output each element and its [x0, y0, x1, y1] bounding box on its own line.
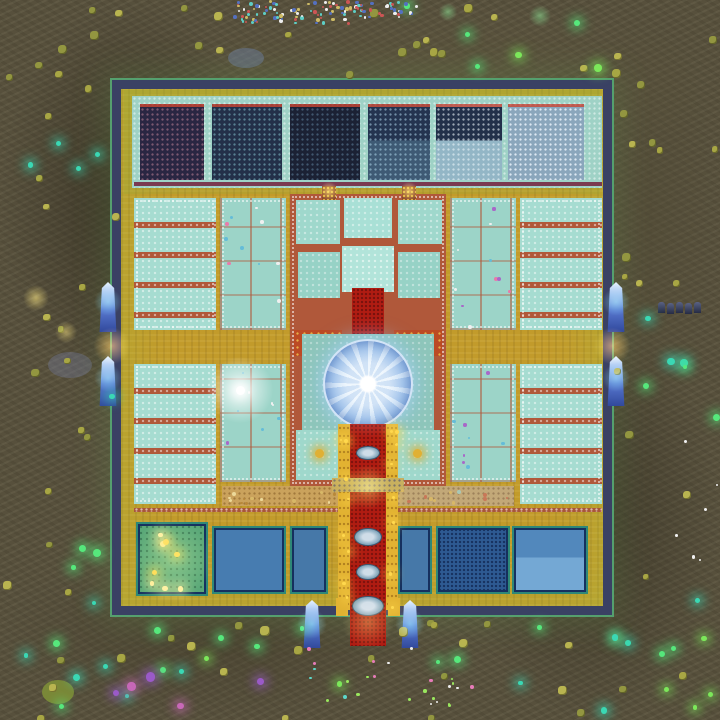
item-stockpile [297, 8, 299, 10]
furnishing [224, 237, 228, 241]
bush [282, 715, 289, 720]
item-stockpile [273, 8, 277, 12]
item-stockpile [307, 3, 310, 6]
glowing-plant [53, 640, 60, 647]
dormitory-block[interactable] [220, 364, 286, 482]
furnishing [508, 290, 511, 293]
bush [37, 715, 45, 720]
palace-hall[interactable] [342, 246, 394, 292]
bush [712, 146, 719, 153]
glowing-plant [160, 667, 166, 673]
dropped-items [456, 687, 459, 690]
glowing-plant [93, 549, 101, 557]
bush [117, 654, 126, 663]
dropped-items [436, 701, 438, 703]
spirit-field[interactable] [290, 104, 360, 180]
pool[interactable] [214, 528, 284, 592]
bush [683, 491, 691, 499]
glowing-plant [436, 660, 440, 664]
bush [637, 81, 645, 89]
item-stockpile [341, 12, 344, 15]
sparkle [692, 555, 696, 559]
spirit-field[interactable] [436, 104, 502, 180]
bush [679, 672, 687, 680]
item-stockpile [292, 8, 296, 12]
glowing-plant [71, 565, 75, 569]
bush [31, 369, 39, 377]
item-stockpile [265, 6, 267, 8]
dropped-items [423, 689, 427, 693]
bush [235, 622, 242, 629]
palace-tower[interactable] [322, 186, 336, 200]
bush [90, 31, 99, 40]
furnishing [227, 262, 230, 265]
item-stockpile [331, 18, 335, 22]
bush [577, 709, 585, 717]
furnishing [463, 454, 466, 457]
storehouse-rows[interactable] [134, 364, 216, 504]
glowing-plant [92, 601, 96, 605]
item-stockpile [269, 6, 272, 9]
item-stockpile [343, 13, 346, 16]
purple-flora [127, 682, 135, 690]
bush [181, 5, 188, 12]
item-stockpile [237, 5, 239, 7]
palace-tower[interactable] [402, 186, 416, 200]
item-stockpile [263, 12, 266, 15]
bush [438, 50, 446, 58]
item-stockpile [249, 2, 253, 6]
purple-flora [113, 690, 119, 696]
glowing-plant [601, 707, 607, 713]
item-stockpile [343, 18, 347, 22]
item-stockpile [245, 16, 248, 19]
dropped-items [432, 697, 435, 700]
glowing-plant [73, 674, 81, 682]
glowing-plant [645, 316, 650, 321]
bush [614, 53, 622, 61]
bush [64, 358, 71, 365]
dropped-items [430, 703, 432, 705]
item-stockpile [340, 6, 343, 9]
item-stockpile [346, 0, 350, 4]
bush [625, 431, 633, 439]
dormitory-block[interactable] [450, 364, 516, 482]
bush [58, 45, 67, 54]
item-stockpile [398, 16, 400, 18]
bush [622, 253, 631, 262]
moss-blob [42, 680, 74, 704]
item-stockpile [397, 13, 400, 16]
bush [649, 139, 657, 147]
glowing-plant [254, 644, 259, 649]
dropped-items [307, 647, 311, 651]
spirit-field[interactable] [508, 104, 584, 180]
item-stockpile [359, 15, 361, 17]
glowing-plant [643, 383, 649, 389]
torch-light [344, 439, 348, 443]
item-stockpile [368, 16, 371, 19]
sparkle [716, 484, 718, 486]
light-bloom [22, 284, 50, 312]
bush [464, 4, 473, 13]
item-stockpile [324, 1, 327, 4]
bush [709, 36, 717, 44]
item-stockpile [313, 1, 317, 5]
item-stockpile [313, 10, 317, 14]
glowing-plant [204, 656, 209, 661]
item-stockpile [315, 22, 318, 25]
spirit-field[interactable] [368, 104, 430, 180]
bush [413, 41, 421, 49]
carpet-medallion [354, 528, 382, 546]
sparkle [684, 440, 687, 443]
dropped-items [470, 685, 474, 689]
fish-pond[interactable] [138, 524, 206, 594]
glowing-plant [518, 681, 523, 686]
dropped-items [309, 677, 311, 679]
glowing-plant [337, 681, 342, 686]
purple-flora [146, 672, 156, 682]
bush [398, 48, 407, 57]
item-stockpile [370, 2, 374, 6]
furnishing [225, 222, 229, 226]
glowing-plant [125, 694, 129, 698]
furnishing [463, 423, 466, 426]
dropped-items [343, 695, 347, 699]
pool[interactable] [514, 528, 586, 592]
bush [423, 37, 431, 45]
bush [346, 71, 354, 79]
altar[interactable] [315, 449, 324, 458]
glowing-plant [56, 141, 61, 146]
glowing-plant [537, 625, 542, 630]
bush [622, 274, 628, 280]
palace-room[interactable] [398, 200, 442, 244]
glowing-plant [659, 651, 665, 657]
glowing-plant [109, 394, 115, 400]
glowing-plant [218, 635, 224, 641]
item-stockpile [349, 6, 352, 9]
bush [3, 581, 11, 589]
pool[interactable] [400, 528, 430, 592]
furnishing [230, 216, 233, 219]
item-stockpile [320, 13, 323, 16]
item-stockpile [399, 10, 403, 14]
glowing-plant [574, 20, 580, 26]
bush [620, 110, 628, 118]
bush [45, 488, 52, 495]
torch-light [389, 572, 393, 576]
grave-marker[interactable] [694, 302, 701, 313]
item-stockpile [241, 15, 244, 18]
torch-light [342, 582, 346, 586]
dropped-items [429, 679, 433, 683]
gold-colonnade [386, 424, 398, 610]
light-bloom [438, 2, 458, 22]
gate-frame [336, 598, 348, 616]
item-stockpile [317, 14, 319, 16]
glowing-plant [708, 692, 713, 697]
item-stockpile [310, 10, 312, 12]
glowing-plant [612, 634, 619, 641]
purple-flora [257, 678, 264, 685]
dropped-items [387, 662, 389, 664]
bush [6, 74, 13, 81]
dropped-items [326, 699, 329, 702]
item-stockpile [386, 4, 389, 7]
lamp[interactable] [236, 386, 245, 395]
glowing-plant [695, 598, 700, 603]
item-stockpile [294, 22, 297, 25]
bush [57, 657, 65, 665]
furnishing [452, 420, 455, 423]
stored-goods [433, 499, 436, 502]
furnishing [454, 288, 457, 291]
glowing-fish [174, 552, 180, 558]
item-stockpile [397, 1, 400, 4]
stored-goods [260, 498, 263, 501]
bush [459, 639, 469, 649]
carpet-medallion [352, 596, 384, 616]
item-stockpile [325, 8, 328, 11]
item-stockpile [329, 5, 332, 8]
item-stockpile [322, 6, 324, 8]
glowing-plant [701, 636, 707, 642]
bush [45, 113, 52, 120]
ceremonial-gate[interactable] [332, 478, 404, 492]
glowing-plant [683, 365, 687, 369]
bush [214, 12, 223, 21]
furnishing [468, 325, 472, 329]
glowing-plant [594, 64, 602, 72]
item-stockpile [294, 18, 297, 21]
stored-goods [245, 502, 247, 504]
dropped-items [451, 678, 454, 681]
bush [612, 69, 621, 78]
sparkle [675, 534, 678, 537]
puddle [228, 48, 264, 68]
palace-room[interactable] [296, 200, 340, 244]
grave-marker[interactable] [667, 303, 674, 314]
dropped-items [448, 685, 451, 688]
item-stockpile [316, 18, 320, 22]
glowing-plant [103, 664, 108, 669]
item-stockpile [415, 5, 418, 8]
bush [430, 48, 438, 56]
glowing-fish [178, 586, 184, 592]
bush [614, 368, 621, 375]
item-stockpile [353, 10, 356, 13]
bush [399, 627, 408, 636]
bush [629, 141, 636, 148]
glowing-plant [625, 640, 631, 646]
bush [657, 147, 663, 153]
stored-goods [328, 501, 330, 503]
stored-goods [228, 497, 230, 499]
item-stockpile [329, 12, 333, 16]
bush [36, 175, 43, 182]
item-stockpile [335, 4, 337, 6]
carpet-upper [352, 288, 384, 340]
spirit-field[interactable] [212, 104, 282, 180]
bush [484, 621, 491, 628]
bush [78, 427, 85, 434]
bush [491, 14, 499, 22]
bush [636, 280, 643, 287]
grave-marker[interactable] [676, 302, 683, 313]
dropped-items [410, 647, 413, 650]
bush [187, 642, 196, 651]
glowing-plant [76, 166, 81, 171]
furnishing [461, 305, 463, 307]
bush [441, 673, 449, 681]
bush [565, 642, 573, 650]
item-stockpile [238, 10, 240, 12]
item-stockpile [253, 8, 255, 10]
glowing-plant [515, 52, 521, 58]
item-stockpile [265, 9, 268, 12]
palace-hall[interactable] [398, 252, 440, 298]
grave-marker[interactable] [685, 303, 692, 314]
item-stockpile [275, 3, 278, 6]
pool[interactable] [292, 528, 326, 592]
palace-hall[interactable] [298, 252, 340, 298]
bush [46, 542, 53, 549]
stored-goods [229, 499, 232, 502]
bush [85, 85, 93, 93]
furnishing [255, 207, 257, 209]
bush [216, 47, 224, 55]
bush [65, 589, 72, 596]
bush [428, 715, 435, 720]
bush [260, 626, 270, 636]
bush [431, 622, 439, 630]
furnishing [492, 207, 495, 210]
glowing-plant [28, 162, 34, 168]
dropped-items [408, 698, 412, 702]
torch-light [344, 477, 348, 481]
bush [58, 326, 64, 332]
glowing-plant [300, 626, 305, 631]
furnishing [240, 246, 244, 250]
glowing-plant [154, 627, 161, 634]
dropped-items [452, 682, 454, 684]
bush [294, 646, 303, 655]
glowing-plant [79, 545, 86, 552]
torch-light [392, 521, 395, 524]
game-viewport [0, 0, 720, 720]
sparkle [704, 508, 708, 512]
glowing-plant [664, 687, 670, 693]
torch-light [347, 550, 350, 553]
bush [89, 7, 96, 14]
glowing-plant [713, 414, 720, 421]
item-stockpile [269, 0, 272, 3]
terrace-wall [134, 182, 602, 186]
light-bloom [528, 4, 552, 28]
bush [195, 42, 203, 50]
glowing-plant [671, 646, 677, 652]
glowing-fish [158, 533, 162, 537]
dropped-items [366, 676, 369, 679]
item-stockpile [296, 12, 299, 15]
spirit-field[interactable] [140, 104, 204, 180]
item-stockpile [245, 21, 247, 23]
glowing-plant [179, 669, 184, 674]
glowing-plant [454, 656, 461, 663]
bush [580, 65, 588, 73]
item-stockpile [279, 14, 283, 18]
carpet-medallion [356, 446, 380, 460]
item-stockpile [355, 6, 358, 9]
sparkle [699, 559, 701, 561]
dormitory-block[interactable] [450, 198, 516, 330]
item-stockpile [255, 4, 259, 8]
storehouse-rows[interactable] [134, 198, 216, 330]
glowing-plant [24, 653, 29, 658]
bush [643, 574, 649, 580]
grave-marker[interactable] [658, 302, 665, 313]
item-stockpile [322, 21, 325, 24]
glowing-plant [95, 152, 101, 158]
item-stockpile [237, 1, 240, 4]
storehouse-rows[interactable] [520, 198, 602, 330]
bush [558, 686, 566, 694]
carpet-medallion [356, 564, 380, 580]
glowing-plant [475, 64, 480, 69]
item-stockpile [364, 16, 367, 19]
storehouse-rows[interactable] [520, 364, 602, 504]
dropped-items [373, 675, 377, 679]
bush [619, 686, 626, 693]
bush [35, 62, 43, 70]
palace-room[interactable] [344, 198, 392, 238]
dropped-items [313, 668, 316, 671]
torch-light [395, 430, 399, 434]
dropped-items [356, 693, 360, 697]
paddy-pool[interactable] [438, 528, 508, 592]
item-stockpile [233, 15, 237, 19]
bush [43, 314, 50, 321]
dropped-items [372, 660, 375, 663]
stored-goods [457, 490, 461, 494]
glowing-plant [59, 704, 64, 709]
item-stockpile [256, 13, 259, 16]
item-stockpile [360, 4, 362, 6]
bush [115, 10, 122, 17]
altar[interactable] [413, 449, 422, 458]
bush [285, 32, 292, 39]
glowing-plant [667, 358, 675, 366]
furnishing [466, 465, 470, 469]
item-stockpile [393, 8, 397, 12]
glowing-plant [693, 705, 697, 709]
bush [168, 635, 174, 641]
puddle [48, 352, 92, 378]
item-stockpile [328, 1, 331, 4]
bush [112, 213, 120, 221]
furnishing [260, 220, 264, 224]
furnishing [462, 461, 465, 464]
bush [55, 71, 63, 79]
bush [49, 684, 57, 692]
item-stockpile [256, 21, 259, 24]
mosaic-plaza[interactable] [323, 339, 413, 429]
dropped-items [346, 680, 349, 683]
item-stockpile [347, 22, 350, 25]
bush [79, 284, 86, 291]
